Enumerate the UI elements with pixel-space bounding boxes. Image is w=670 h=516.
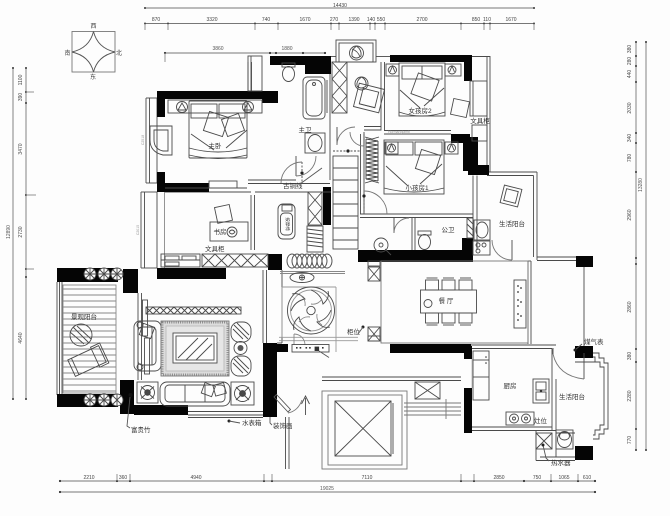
svg-text:380: 380	[627, 45, 633, 54]
svg-text:7110: 7110	[362, 475, 373, 481]
svg-text:1670: 1670	[299, 17, 310, 23]
svg-text:390: 390	[18, 93, 24, 102]
svg-text:770: 770	[627, 436, 633, 445]
svg-text:C2015: C2015	[136, 225, 140, 235]
svg-text:850: 850	[472, 17, 481, 23]
svg-text:2860: 2860	[627, 301, 633, 312]
svg-text:140: 140	[367, 17, 376, 23]
svg-text:灶位: 灶位	[534, 416, 548, 425]
svg-text:餐 厅: 餐 厅	[439, 296, 454, 305]
svg-text:2960: 2960	[627, 209, 633, 220]
svg-text:13280: 13280	[638, 178, 644, 192]
svg-text:景观阳台: 景观阳台	[71, 312, 97, 321]
svg-text:北: 北	[116, 49, 122, 57]
svg-text:东: 东	[90, 73, 96, 81]
svg-text:780: 780	[627, 154, 633, 163]
svg-text:2210: 2210	[83, 475, 94, 481]
svg-text:610: 610	[583, 475, 592, 481]
svg-text:1065: 1065	[558, 475, 569, 481]
svg-text:19025: 19025	[320, 486, 334, 492]
svg-text:2280: 2280	[627, 390, 633, 401]
svg-text:110: 110	[483, 17, 491, 23]
svg-text:热水器: 热水器	[551, 458, 571, 467]
svg-text:小孩房1: 小孩房1	[405, 183, 429, 192]
svg-text:C2518: C2518	[141, 135, 145, 145]
svg-text:550: 550	[377, 17, 386, 23]
svg-text:1670: 1670	[505, 17, 516, 23]
svg-text:2030: 2030	[627, 102, 633, 113]
svg-text:古铜线: 古铜线	[283, 181, 303, 190]
svg-text:3320: 3320	[206, 17, 217, 23]
svg-text:富贵竹: 富贵竹	[131, 425, 151, 434]
svg-text:文具柜: 文具柜	[470, 116, 490, 125]
svg-text:南: 南	[64, 49, 70, 57]
svg-text:主卧: 主卧	[209, 141, 223, 150]
svg-text:14430: 14430	[333, 3, 347, 9]
svg-text:440: 440	[627, 70, 633, 79]
svg-text:870: 870	[152, 17, 161, 23]
svg-text:装饰画: 装饰画	[273, 421, 293, 430]
svg-text:书房: 书房	[214, 227, 227, 236]
svg-text:380: 380	[627, 352, 633, 361]
svg-text:女孩房2: 女孩房2	[408, 106, 432, 115]
svg-text:270: 270	[330, 17, 339, 23]
svg-text:12890: 12890	[6, 225, 12, 239]
svg-text:1390: 1390	[348, 17, 359, 23]
svg-text:2730: 2730	[18, 226, 24, 237]
svg-text:2700: 2700	[416, 17, 427, 23]
svg-text:水表箱: 水表箱	[242, 418, 262, 427]
svg-text:柜位: 柜位	[347, 327, 361, 336]
svg-text:4940: 4940	[190, 475, 201, 481]
svg-text:厨房: 厨房	[504, 381, 517, 390]
svg-text:3860: 3860	[212, 46, 223, 52]
svg-text:生活阳台: 生活阳台	[499, 219, 525, 228]
svg-text:750: 750	[533, 475, 542, 481]
svg-text:740: 740	[262, 17, 271, 23]
svg-text:主卫: 主卫	[299, 125, 313, 134]
svg-text:Hormanglamb: Hormanglamb	[388, 130, 410, 134]
svg-text:360: 360	[119, 475, 128, 481]
svg-text:按摩椅: 按摩椅	[284, 217, 291, 231]
svg-text:文具柜: 文具柜	[205, 244, 225, 253]
svg-text:生活阳台: 生活阳台	[559, 392, 585, 401]
svg-text:1100: 1100	[18, 74, 24, 85]
svg-text:煤气表: 煤气表	[584, 337, 604, 346]
svg-text:1880: 1880	[281, 46, 292, 52]
svg-text:西: 西	[90, 23, 96, 30]
svg-text:公卫: 公卫	[442, 226, 456, 234]
svg-text:2850: 2850	[493, 475, 504, 481]
svg-text:280: 280	[627, 57, 633, 66]
svg-text:3470: 3470	[18, 143, 24, 154]
svg-text:4640: 4640	[18, 332, 24, 343]
svg-text:340: 340	[627, 134, 633, 143]
